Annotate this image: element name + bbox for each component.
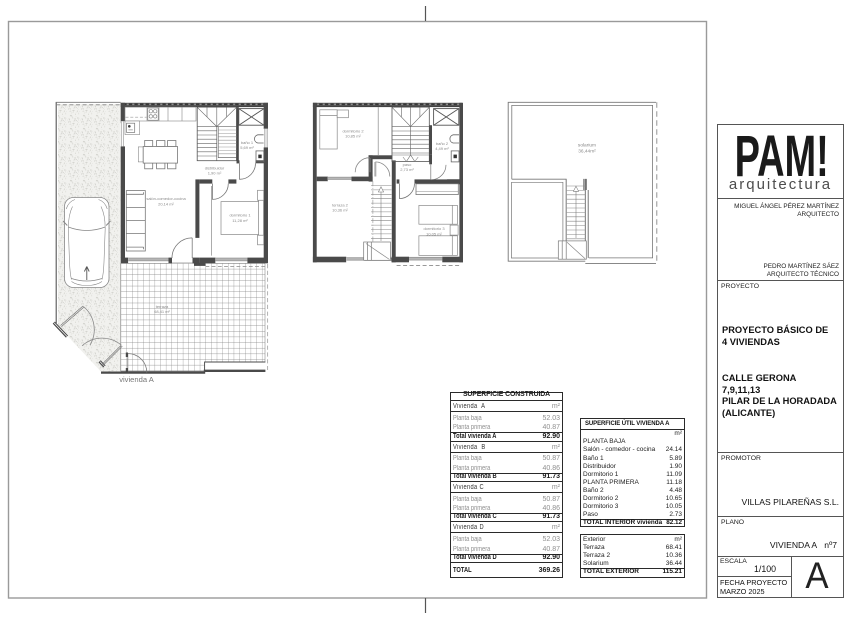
svg-text:36,44m²: 36,44m²: [578, 149, 596, 155]
svg-text:solarium: solarium: [578, 143, 596, 149]
